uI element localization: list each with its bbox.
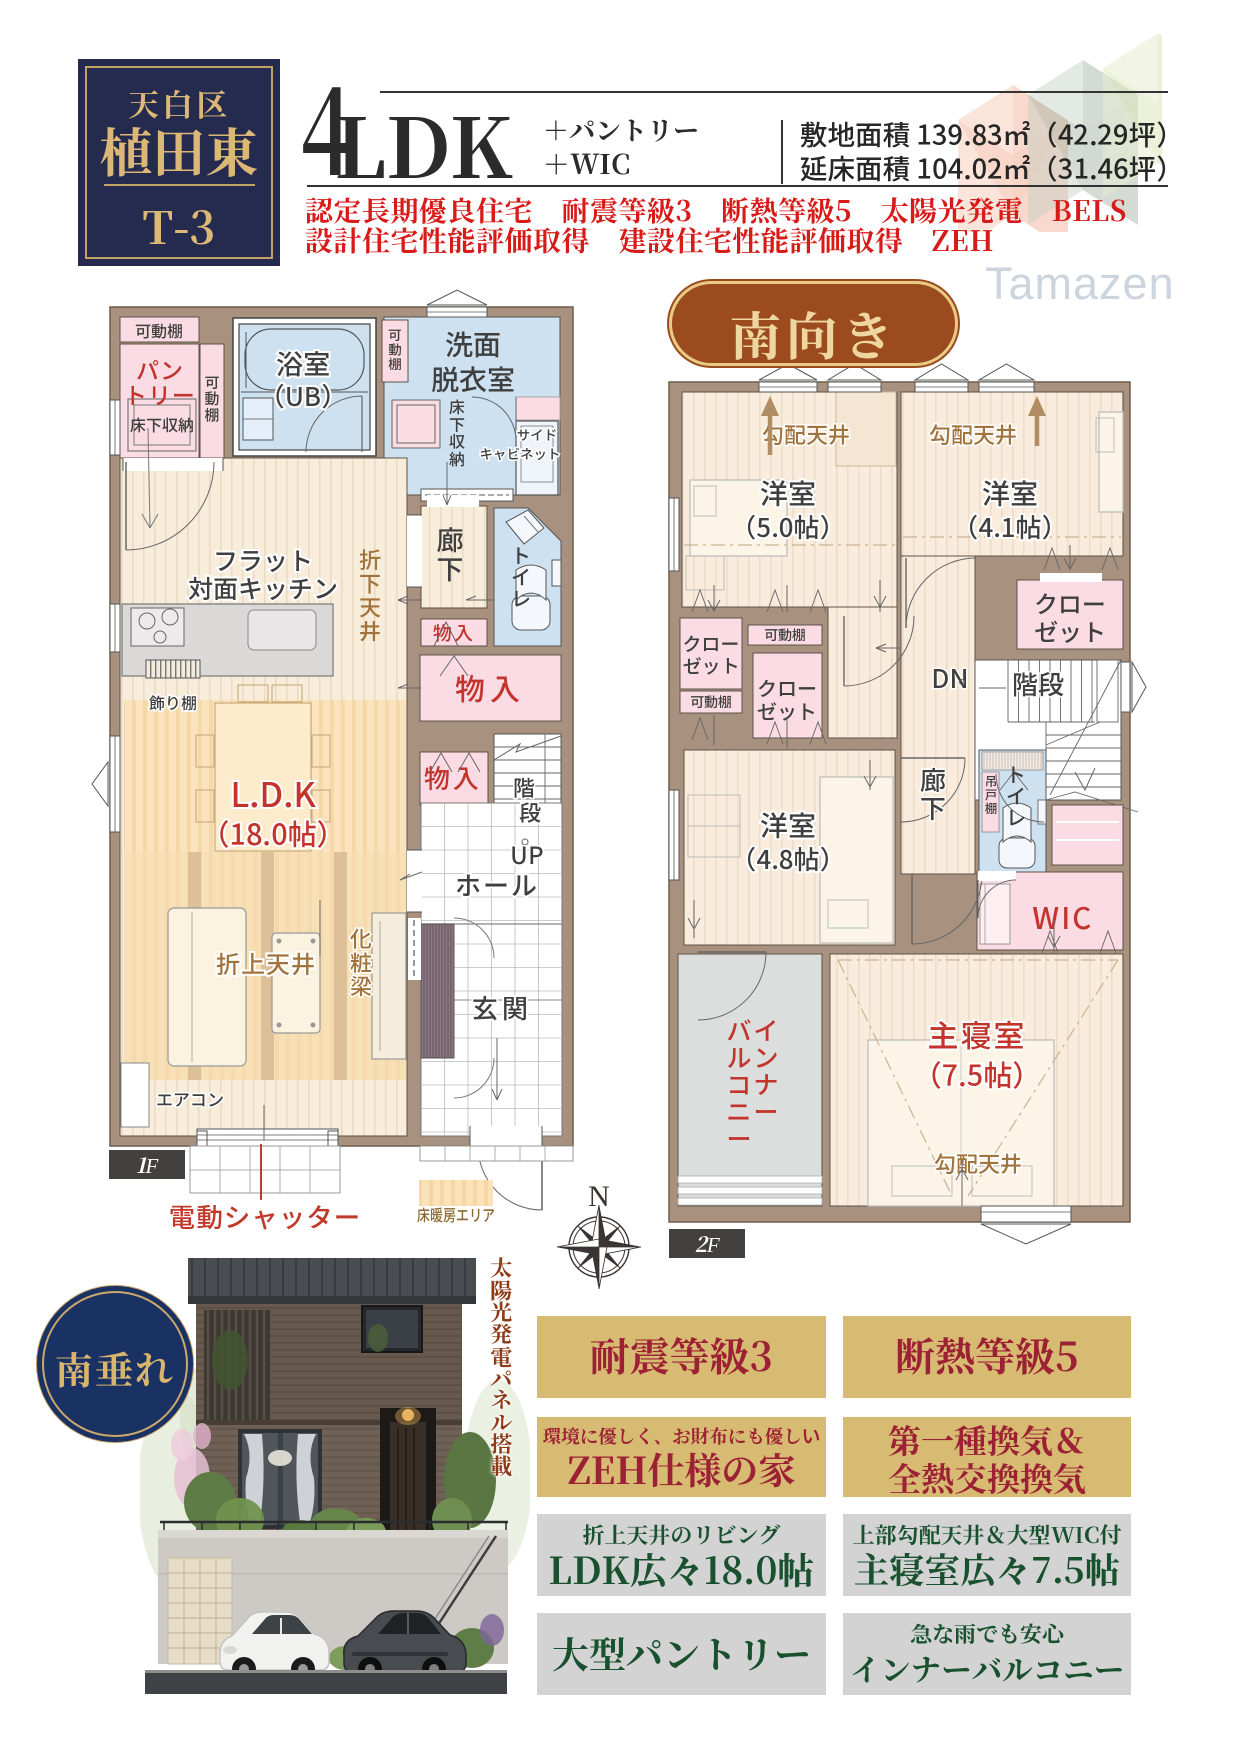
svg-text:キャビネット: キャビネット [480,443,561,463]
svg-text:（UB）: （UB） [259,377,347,414]
svg-text:（7.5帖）: （7.5帖） [913,1053,1042,1095]
svg-text:勾配天井: 勾配天井 [929,418,1017,450]
svg-text:下: 下 [920,789,946,826]
svg-text:レ: レ [511,583,531,612]
svg-text:DN: DN [931,659,968,696]
svg-text:WIC: WIC [1032,894,1093,938]
svg-text:可動棚: 可動棚 [764,625,806,645]
svg-text:階段: 階段 [1012,665,1064,702]
svg-text:電動シャッター: 電動シャッター [169,1196,362,1235]
svg-text:井: 井 [359,614,381,646]
svg-text:エアコン: エアコン [156,1086,224,1111]
svg-text:梁: 梁 [350,970,372,1002]
svg-text:脱衣室: 脱衣室 [431,359,515,399]
svg-text:棚: 棚 [985,798,998,817]
svg-text:下: 下 [437,548,464,587]
svg-text:折上天井: 折上天井 [216,945,316,980]
svg-text:（4.8帖）: （4.8帖） [730,840,845,877]
svg-text:（4.1帖）: （4.1帖） [952,508,1067,545]
svg-text:床暖房エリア: 床暖房エリア [417,1202,495,1226]
svg-text:ゼット: ゼット [682,652,739,679]
svg-text:勾配天井: 勾配天井 [762,418,850,450]
svg-text:L.D.K: L.D.K [230,768,316,817]
svg-text:勾配天井: 勾配天井 [934,1147,1022,1179]
svg-text:可動棚: 可動棚 [135,318,183,342]
svg-text:対面キッチン: 対面キッチン [188,570,338,606]
svg-text:飾り棚: 飾り棚 [149,690,197,714]
svg-text:洋室: 洋室 [760,805,816,845]
svg-text:物入: 物入 [424,759,482,796]
svg-text:レ: レ [1006,802,1026,831]
svg-text:納: 納 [449,446,465,470]
svg-text:ゼット: ゼット [1034,613,1106,648]
svg-text:棚: 棚 [388,353,402,373]
svg-text:可動棚: 可動棚 [690,692,732,712]
svg-text:ー: ー [726,1120,751,1156]
svg-text:棚: 棚 [204,404,219,425]
svg-text:段: 段 [519,796,541,828]
svg-text:洗面: 洗面 [445,324,501,364]
svg-text:（18.0帖）: （18.0帖） [200,812,345,854]
svg-text:トリー: トリー [124,377,196,411]
svg-text:物入: 物入 [433,619,475,646]
svg-text:洋室: 洋室 [982,473,1038,513]
svg-text:ー: ー [753,1093,778,1129]
svg-text:洋室: 洋室 [760,473,816,513]
svg-text:床下収納: 床下収納 [130,412,194,436]
svg-text:2F: 2F [694,1229,719,1259]
svg-text:ホール: ホール [455,866,539,903]
svg-text:（5.0帖）: （5.0帖） [730,508,845,545]
svg-text:1F: 1F [136,1150,159,1180]
svg-text:サイド: サイド [517,424,558,444]
svg-text:玄関: 玄関 [472,989,532,1026]
svg-text:主寝室: 主寝室 [928,1011,1027,1056]
